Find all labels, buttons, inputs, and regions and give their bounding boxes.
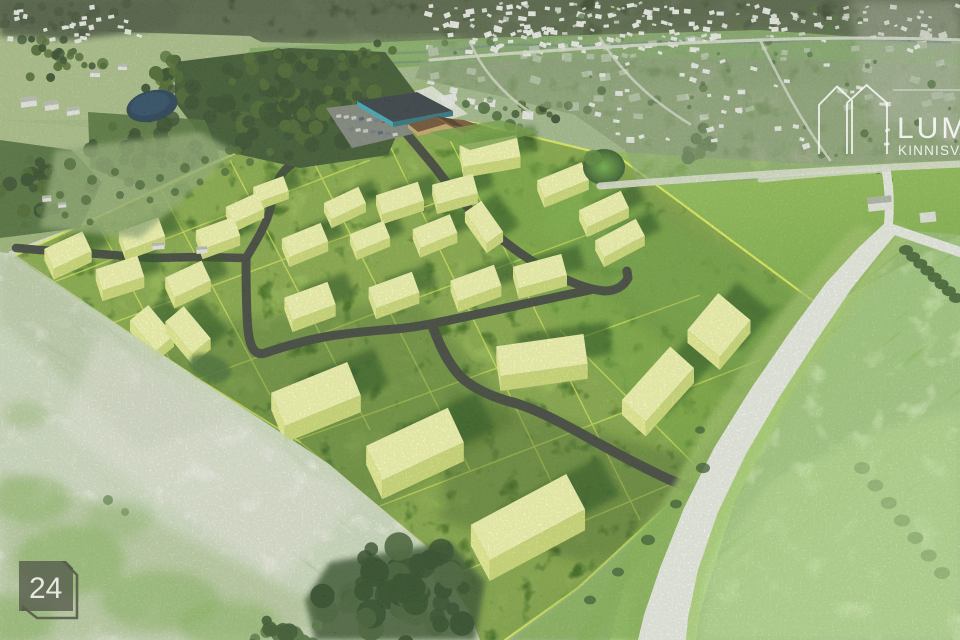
- svg-text:KINNISVAR: KINNISVAR: [898, 143, 960, 158]
- svg-text:LUM: LUM: [897, 112, 960, 145]
- svg-text:24: 24: [29, 572, 62, 605]
